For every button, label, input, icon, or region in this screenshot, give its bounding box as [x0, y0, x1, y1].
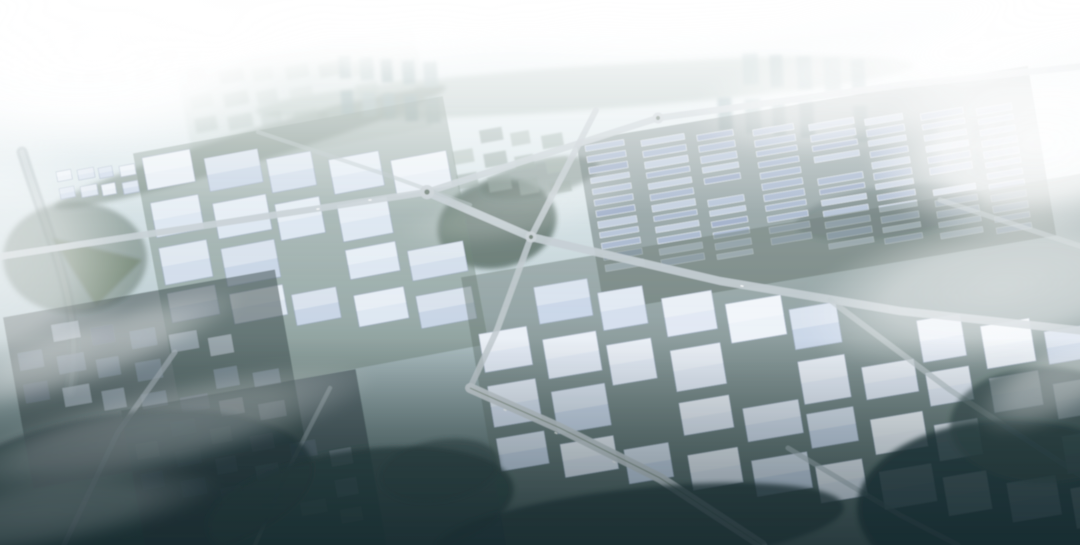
vignette-shadow — [0, 0, 1080, 545]
aerial-render: Aerial rendering of an industrial park a… — [0, 0, 1080, 545]
industrial-park-scene: Aerial rendering of an industrial park a… — [0, 0, 1080, 545]
